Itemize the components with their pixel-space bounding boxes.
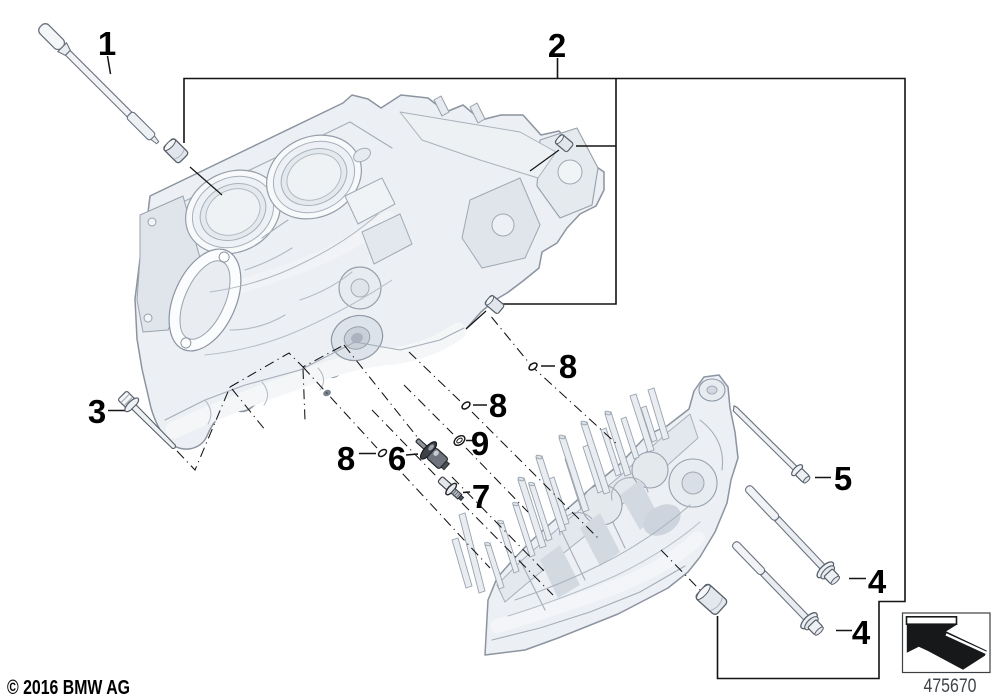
- svg-text:1: 1: [98, 25, 116, 62]
- svg-text:5: 5: [834, 460, 852, 497]
- svg-text:8: 8: [559, 348, 577, 385]
- svg-text:475670: 475670: [924, 676, 977, 697]
- svg-text:8: 8: [489, 387, 507, 424]
- svg-text:© 2016 BMW AG: © 2016 BMW AG: [7, 677, 130, 699]
- svg-text:3: 3: [88, 393, 106, 430]
- svg-text:9: 9: [471, 425, 489, 462]
- svg-text:7: 7: [472, 478, 490, 515]
- svg-text:4: 4: [868, 563, 887, 600]
- svg-text:4: 4: [852, 614, 871, 651]
- svg-text:8: 8: [337, 440, 355, 477]
- svg-text:6: 6: [388, 440, 406, 477]
- svg-text:2: 2: [548, 27, 566, 64]
